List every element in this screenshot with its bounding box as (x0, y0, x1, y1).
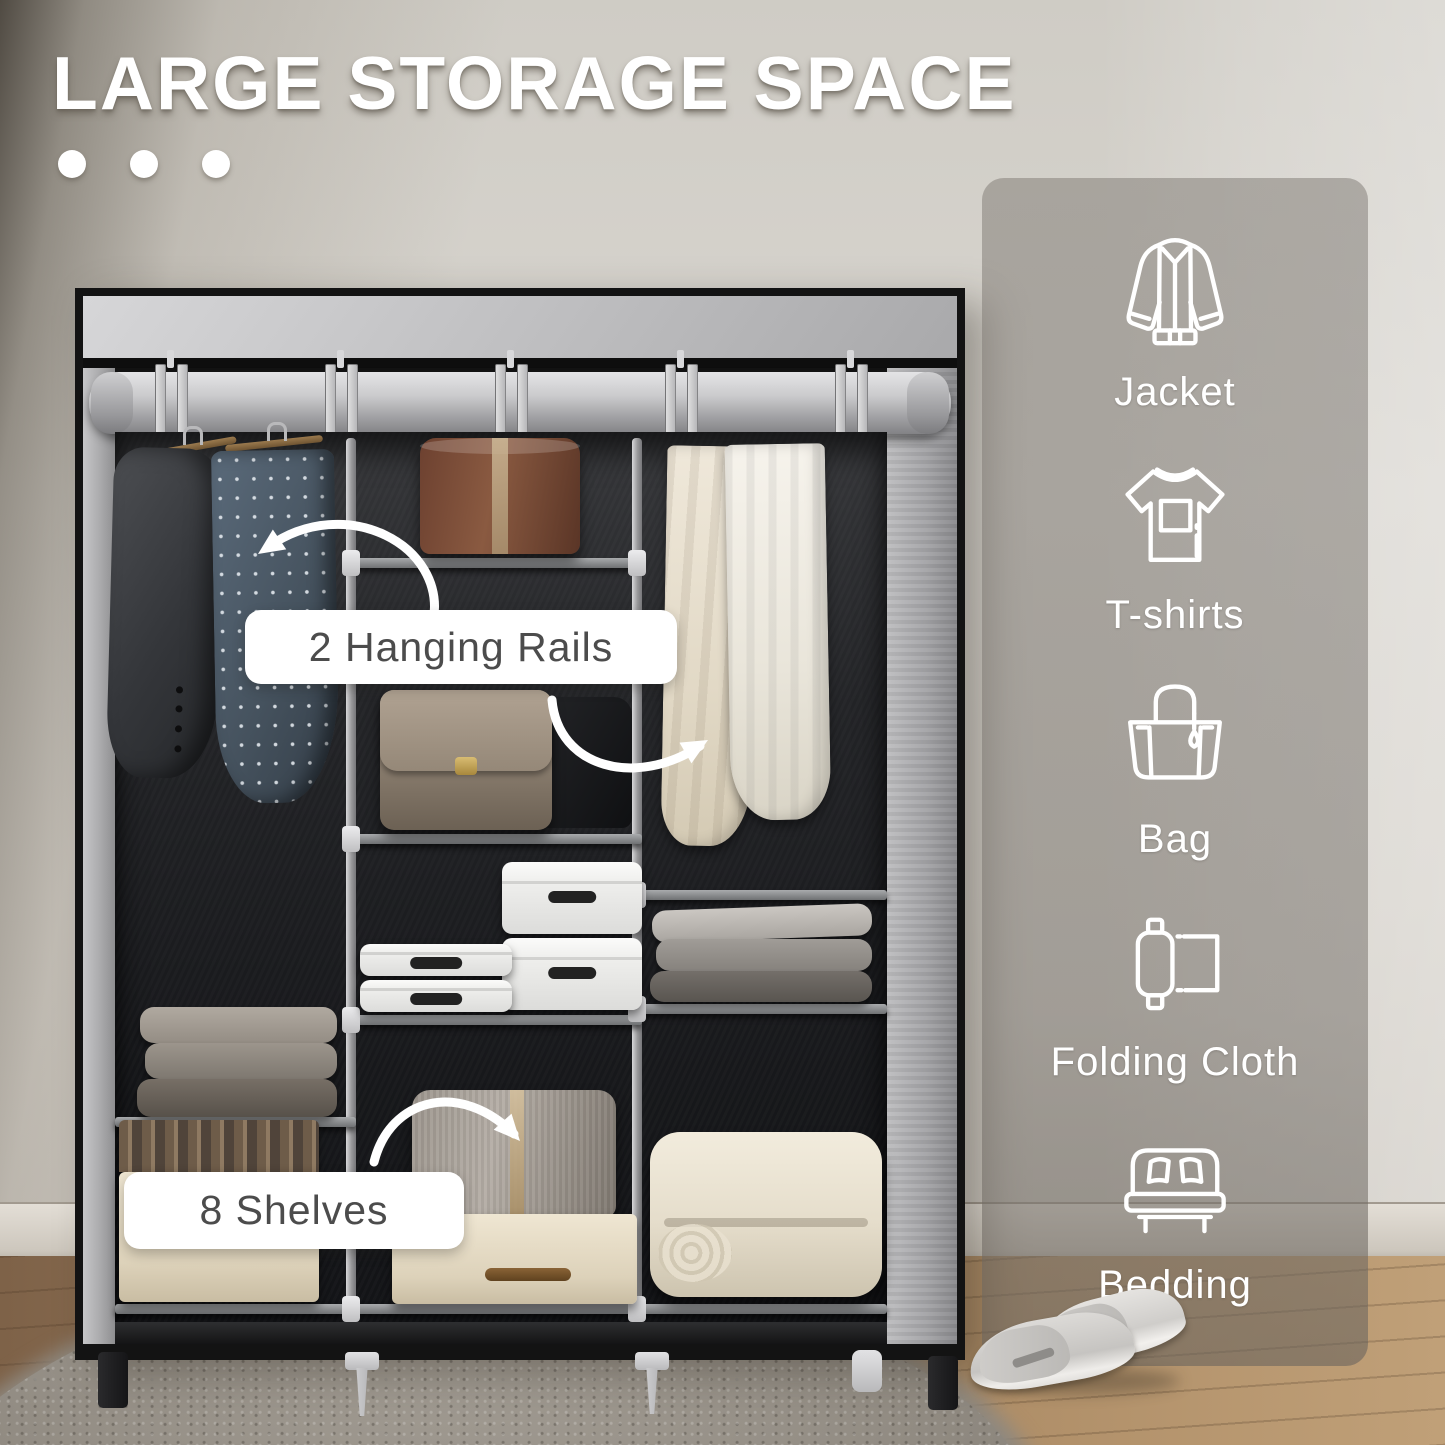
wardrobe-base (115, 1322, 887, 1344)
roll-end-cap (91, 372, 133, 434)
panel-item-folding-cloth: Folding Cloth (1051, 898, 1300, 1085)
shelf (346, 1015, 642, 1025)
jacket-icon (1111, 228, 1239, 356)
folded-gray-cloth (656, 939, 872, 971)
title-dot (58, 150, 86, 178)
shelf-connector (342, 1007, 360, 1033)
wardrobe-foot-connector (635, 1352, 669, 1370)
suitcase-handle (485, 1268, 571, 1281)
black-handbag (540, 697, 632, 828)
wardrobe-left-cover (83, 368, 115, 1344)
door-strap-loop (677, 350, 684, 368)
bag-icon (1111, 675, 1239, 803)
shelf (632, 890, 887, 900)
panel-item-jacket: Jacket (1111, 228, 1239, 415)
wardrobe-leg (928, 1356, 958, 1410)
folded-sweater (137, 1079, 337, 1117)
shelf-connector (628, 550, 646, 576)
shelf-connector (342, 1296, 360, 1322)
wardrobe-right-cover (887, 368, 957, 1344)
hanger-hook (183, 426, 203, 445)
hanging-rails-label: 2 Hanging Rails (309, 624, 613, 671)
wardrobe-leg (98, 1352, 128, 1408)
hanging-suit-jacket (106, 447, 225, 780)
round-hat-box (420, 438, 580, 554)
shelf (346, 558, 642, 568)
folded-sweater (140, 1007, 337, 1043)
folded-duvet (650, 1132, 882, 1297)
panel-item-label: T-shirts (1105, 593, 1244, 638)
hanging-white-shirt (725, 443, 832, 821)
white-storage-tray (360, 944, 512, 976)
leather-satchel (380, 690, 552, 830)
shelf (115, 1304, 887, 1314)
white-storage-box (502, 938, 642, 1010)
storage-categories-panel: Jacket T-shirts Bag (982, 178, 1368, 1366)
panel-item-tshirts: T-shirts (1105, 451, 1244, 638)
title-dot (202, 150, 230, 178)
rolled-clothes-organizer-top (119, 1120, 319, 1172)
panel-item-label: Bag (1138, 817, 1212, 862)
white-storage-tray (360, 980, 512, 1012)
white-storage-box (502, 862, 642, 934)
folded-gray-cloth (650, 971, 872, 1002)
shelf-connector (342, 826, 360, 852)
shelf (346, 834, 642, 844)
panel-item-label: Folding Cloth (1051, 1040, 1300, 1085)
panel-item-label: Jacket (1114, 370, 1236, 415)
roll-end-cap (907, 372, 949, 434)
shelf-connector (342, 550, 360, 576)
product-infographic: Jacket T-shirts Bag (0, 0, 1445, 1445)
door-strap-loop (507, 350, 514, 368)
wardrobe-top-cover (83, 296, 957, 358)
wardrobe-foot-connector (345, 1352, 379, 1370)
wardrobe-foot (852, 1350, 882, 1392)
hanging-rails-callout: 2 Hanging Rails (245, 610, 677, 684)
panel-item-bedding: Bedding (1098, 1121, 1252, 1308)
hanger-hook (267, 422, 287, 441)
panel-item-bag: Bag (1111, 675, 1239, 862)
shelves-callout: 8 Shelves (124, 1172, 464, 1249)
folding-cloth-icon (1111, 898, 1239, 1026)
door-strap-loop (167, 350, 174, 368)
shelves-label: 8 Shelves (199, 1187, 388, 1234)
door-strap-loop (847, 350, 854, 368)
tshirt-icon (1111, 451, 1239, 579)
bedding-icon (1111, 1121, 1239, 1249)
shelf (632, 1004, 887, 1014)
door-strap-loop (337, 350, 344, 368)
title-dot (130, 150, 158, 178)
page-title: LARGE STORAGE SPACE (52, 40, 1017, 126)
folded-sweater (145, 1043, 337, 1079)
